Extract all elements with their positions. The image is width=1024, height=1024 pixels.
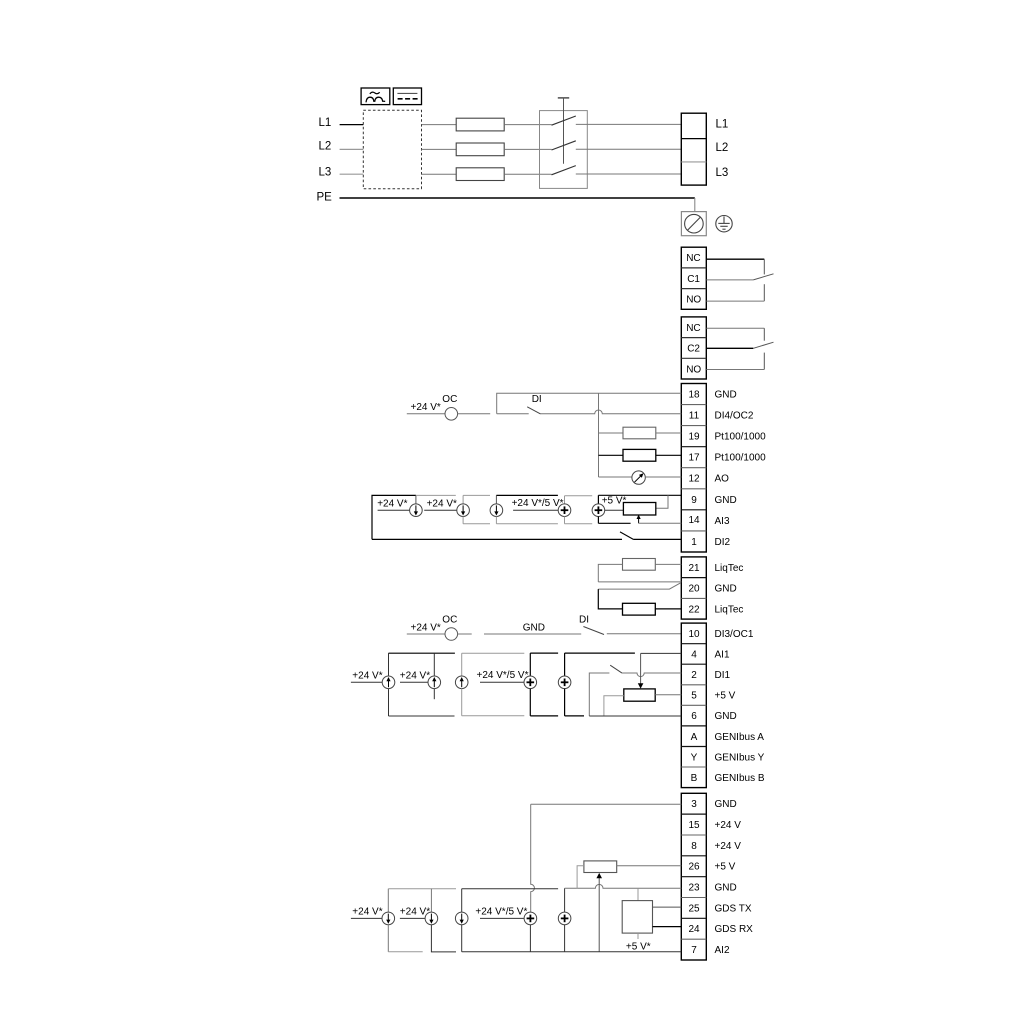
svg-text:15: 15	[688, 820, 700, 831]
svg-text:+24 V*: +24 V*	[411, 622, 441, 633]
svg-text:GENIbus A: GENIbus A	[715, 732, 765, 743]
svg-text:GND: GND	[715, 390, 737, 401]
svg-text:DI1: DI1	[715, 670, 731, 681]
svg-text:LiqTec: LiqTec	[715, 604, 744, 615]
svg-text:1: 1	[691, 537, 697, 548]
svg-text:21: 21	[688, 563, 700, 574]
svg-text:+24 V*: +24 V*	[400, 671, 430, 682]
svg-text:L2: L2	[319, 141, 332, 153]
svg-text:26: 26	[688, 862, 700, 873]
svg-text:+24 V: +24 V	[715, 841, 742, 852]
svg-text:Pt100/1000: Pt100/1000	[715, 432, 767, 443]
svg-text:GENIbus B: GENIbus B	[715, 773, 765, 784]
svg-text:GND: GND	[715, 883, 737, 894]
svg-text:2: 2	[691, 670, 697, 681]
svg-text:AI2: AI2	[715, 945, 730, 956]
svg-text:C1: C1	[687, 274, 700, 285]
svg-text:Pt100/1000: Pt100/1000	[715, 453, 767, 464]
svg-text:12: 12	[688, 474, 700, 485]
svg-text:DI: DI	[532, 394, 542, 405]
svg-text:DI2: DI2	[715, 537, 731, 548]
svg-text:DI: DI	[579, 614, 589, 625]
svg-text:GENIbus Y: GENIbus Y	[715, 752, 765, 763]
svg-text:23: 23	[688, 883, 700, 894]
svg-text:A: A	[691, 732, 698, 743]
svg-text:Y: Y	[691, 752, 698, 763]
svg-text:NC: NC	[686, 253, 700, 264]
svg-text:3: 3	[691, 799, 697, 810]
svg-text:L3: L3	[716, 167, 729, 179]
svg-text:11: 11	[689, 411, 700, 422]
svg-text:+24 V*: +24 V*	[352, 671, 382, 682]
svg-text:24: 24	[688, 924, 700, 935]
svg-text:DI3/OC1: DI3/OC1	[715, 629, 754, 640]
svg-text:4: 4	[691, 650, 697, 661]
svg-text:AO: AO	[715, 474, 730, 485]
svg-text:OC: OC	[442, 394, 457, 405]
svg-text:AI1: AI1	[715, 650, 730, 661]
svg-text:AI3: AI3	[715, 516, 730, 527]
svg-text:NO: NO	[686, 295, 701, 306]
svg-text:L3: L3	[319, 166, 332, 178]
svg-text:+5 V: +5 V	[715, 691, 736, 702]
svg-text:17: 17	[688, 453, 700, 464]
svg-text:B: B	[691, 773, 698, 784]
svg-text:L1: L1	[716, 118, 729, 130]
svg-text:GND: GND	[523, 622, 545, 633]
svg-text:5: 5	[691, 691, 697, 702]
svg-text:+5 V: +5 V	[715, 862, 736, 873]
svg-text:25: 25	[688, 903, 700, 914]
svg-text:18: 18	[688, 390, 700, 401]
svg-text:7: 7	[691, 945, 697, 956]
svg-text:LiqTec: LiqTec	[715, 563, 744, 574]
svg-text:NC: NC	[686, 323, 700, 334]
svg-text:L2: L2	[716, 142, 729, 154]
svg-text:6: 6	[691, 711, 697, 722]
svg-text:GDS TX: GDS TX	[715, 903, 752, 914]
svg-text:+24 V*: +24 V*	[377, 499, 407, 510]
svg-text:8: 8	[691, 841, 697, 852]
svg-text:+24 V*/5 V*: +24 V*/5 V*	[512, 498, 564, 509]
svg-text:+24 V*/5 V*: +24 V*/5 V*	[475, 907, 527, 918]
svg-text:+24 V*: +24 V*	[411, 402, 441, 413]
svg-text:NO: NO	[686, 364, 701, 375]
svg-text:GDS RX: GDS RX	[715, 924, 754, 935]
svg-text:14: 14	[688, 515, 700, 526]
svg-text:PE: PE	[317, 192, 333, 204]
svg-text:+5 V*: +5 V*	[626, 942, 651, 953]
svg-text:GND: GND	[715, 799, 737, 810]
svg-text:GND: GND	[715, 495, 737, 506]
svg-text:+24 V*: +24 V*	[352, 907, 382, 918]
svg-text:20: 20	[688, 584, 700, 595]
svg-text:L1: L1	[319, 117, 332, 129]
svg-text:GND: GND	[715, 584, 737, 595]
svg-text:OC: OC	[442, 614, 457, 625]
svg-text:22: 22	[688, 604, 700, 615]
svg-text:GND: GND	[715, 711, 737, 722]
svg-text:+24 V: +24 V	[715, 820, 742, 831]
svg-text:10: 10	[688, 629, 700, 640]
svg-text:+24 V*/5 V*: +24 V*/5 V*	[477, 670, 529, 681]
svg-text:C2: C2	[687, 344, 700, 355]
svg-text:+24 V*: +24 V*	[427, 499, 457, 510]
svg-text:DI4/OC2: DI4/OC2	[715, 411, 754, 422]
svg-text:19: 19	[688, 432, 700, 443]
svg-text:9: 9	[691, 495, 697, 506]
